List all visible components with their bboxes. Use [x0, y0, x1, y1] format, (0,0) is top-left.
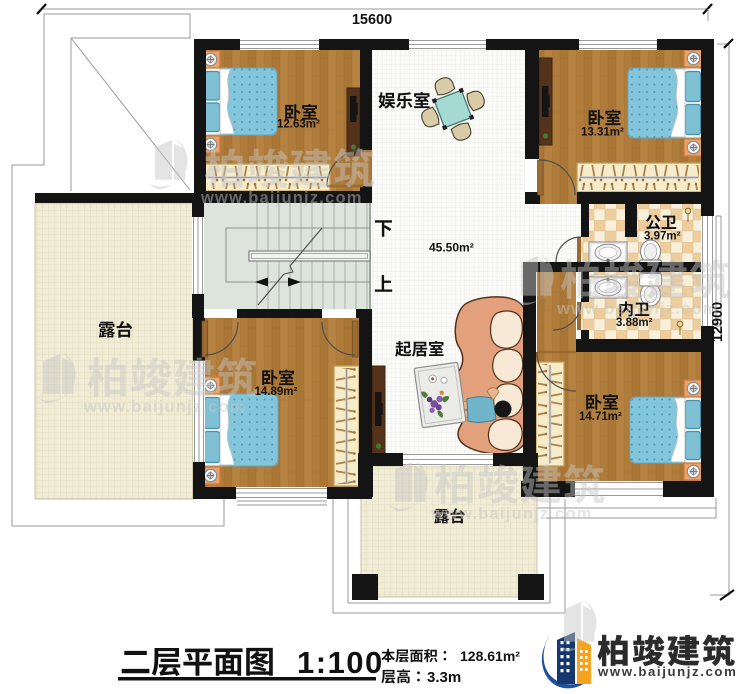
svg-text:1:100: 1:100 — [297, 645, 384, 680]
svg-text:3.3m: 3.3m — [427, 669, 461, 686]
svg-text:15600: 15600 — [352, 12, 392, 28]
svg-text:45.50m²: 45.50m² — [429, 241, 474, 255]
svg-text:14.89m²: 14.89m² — [255, 386, 298, 398]
svg-text:14.71m²: 14.71m² — [579, 411, 622, 423]
svg-text:13.31m²: 13.31m² — [581, 127, 624, 139]
svg-text:www.baijunjz.com: www.baijunjz.com — [556, 300, 719, 318]
svg-text:www.baijunjz.com: www.baijunjz.com — [430, 505, 593, 523]
svg-text:12.63m²: 12.63m² — [277, 119, 320, 131]
svg-text:www.baijunjz.com: www.baijunjz.com — [200, 189, 363, 207]
svg-text:www.baijunjz.com: www.baijunjz.com — [83, 398, 246, 416]
svg-text:www.baijunjz.com: www.baijunjz.com — [597, 664, 737, 679]
svg-text:128.61m²: 128.61m² — [460, 648, 520, 664]
svg-text:3.88m²: 3.88m² — [616, 317, 653, 329]
svg-text:3.97m²: 3.97m² — [644, 231, 681, 243]
